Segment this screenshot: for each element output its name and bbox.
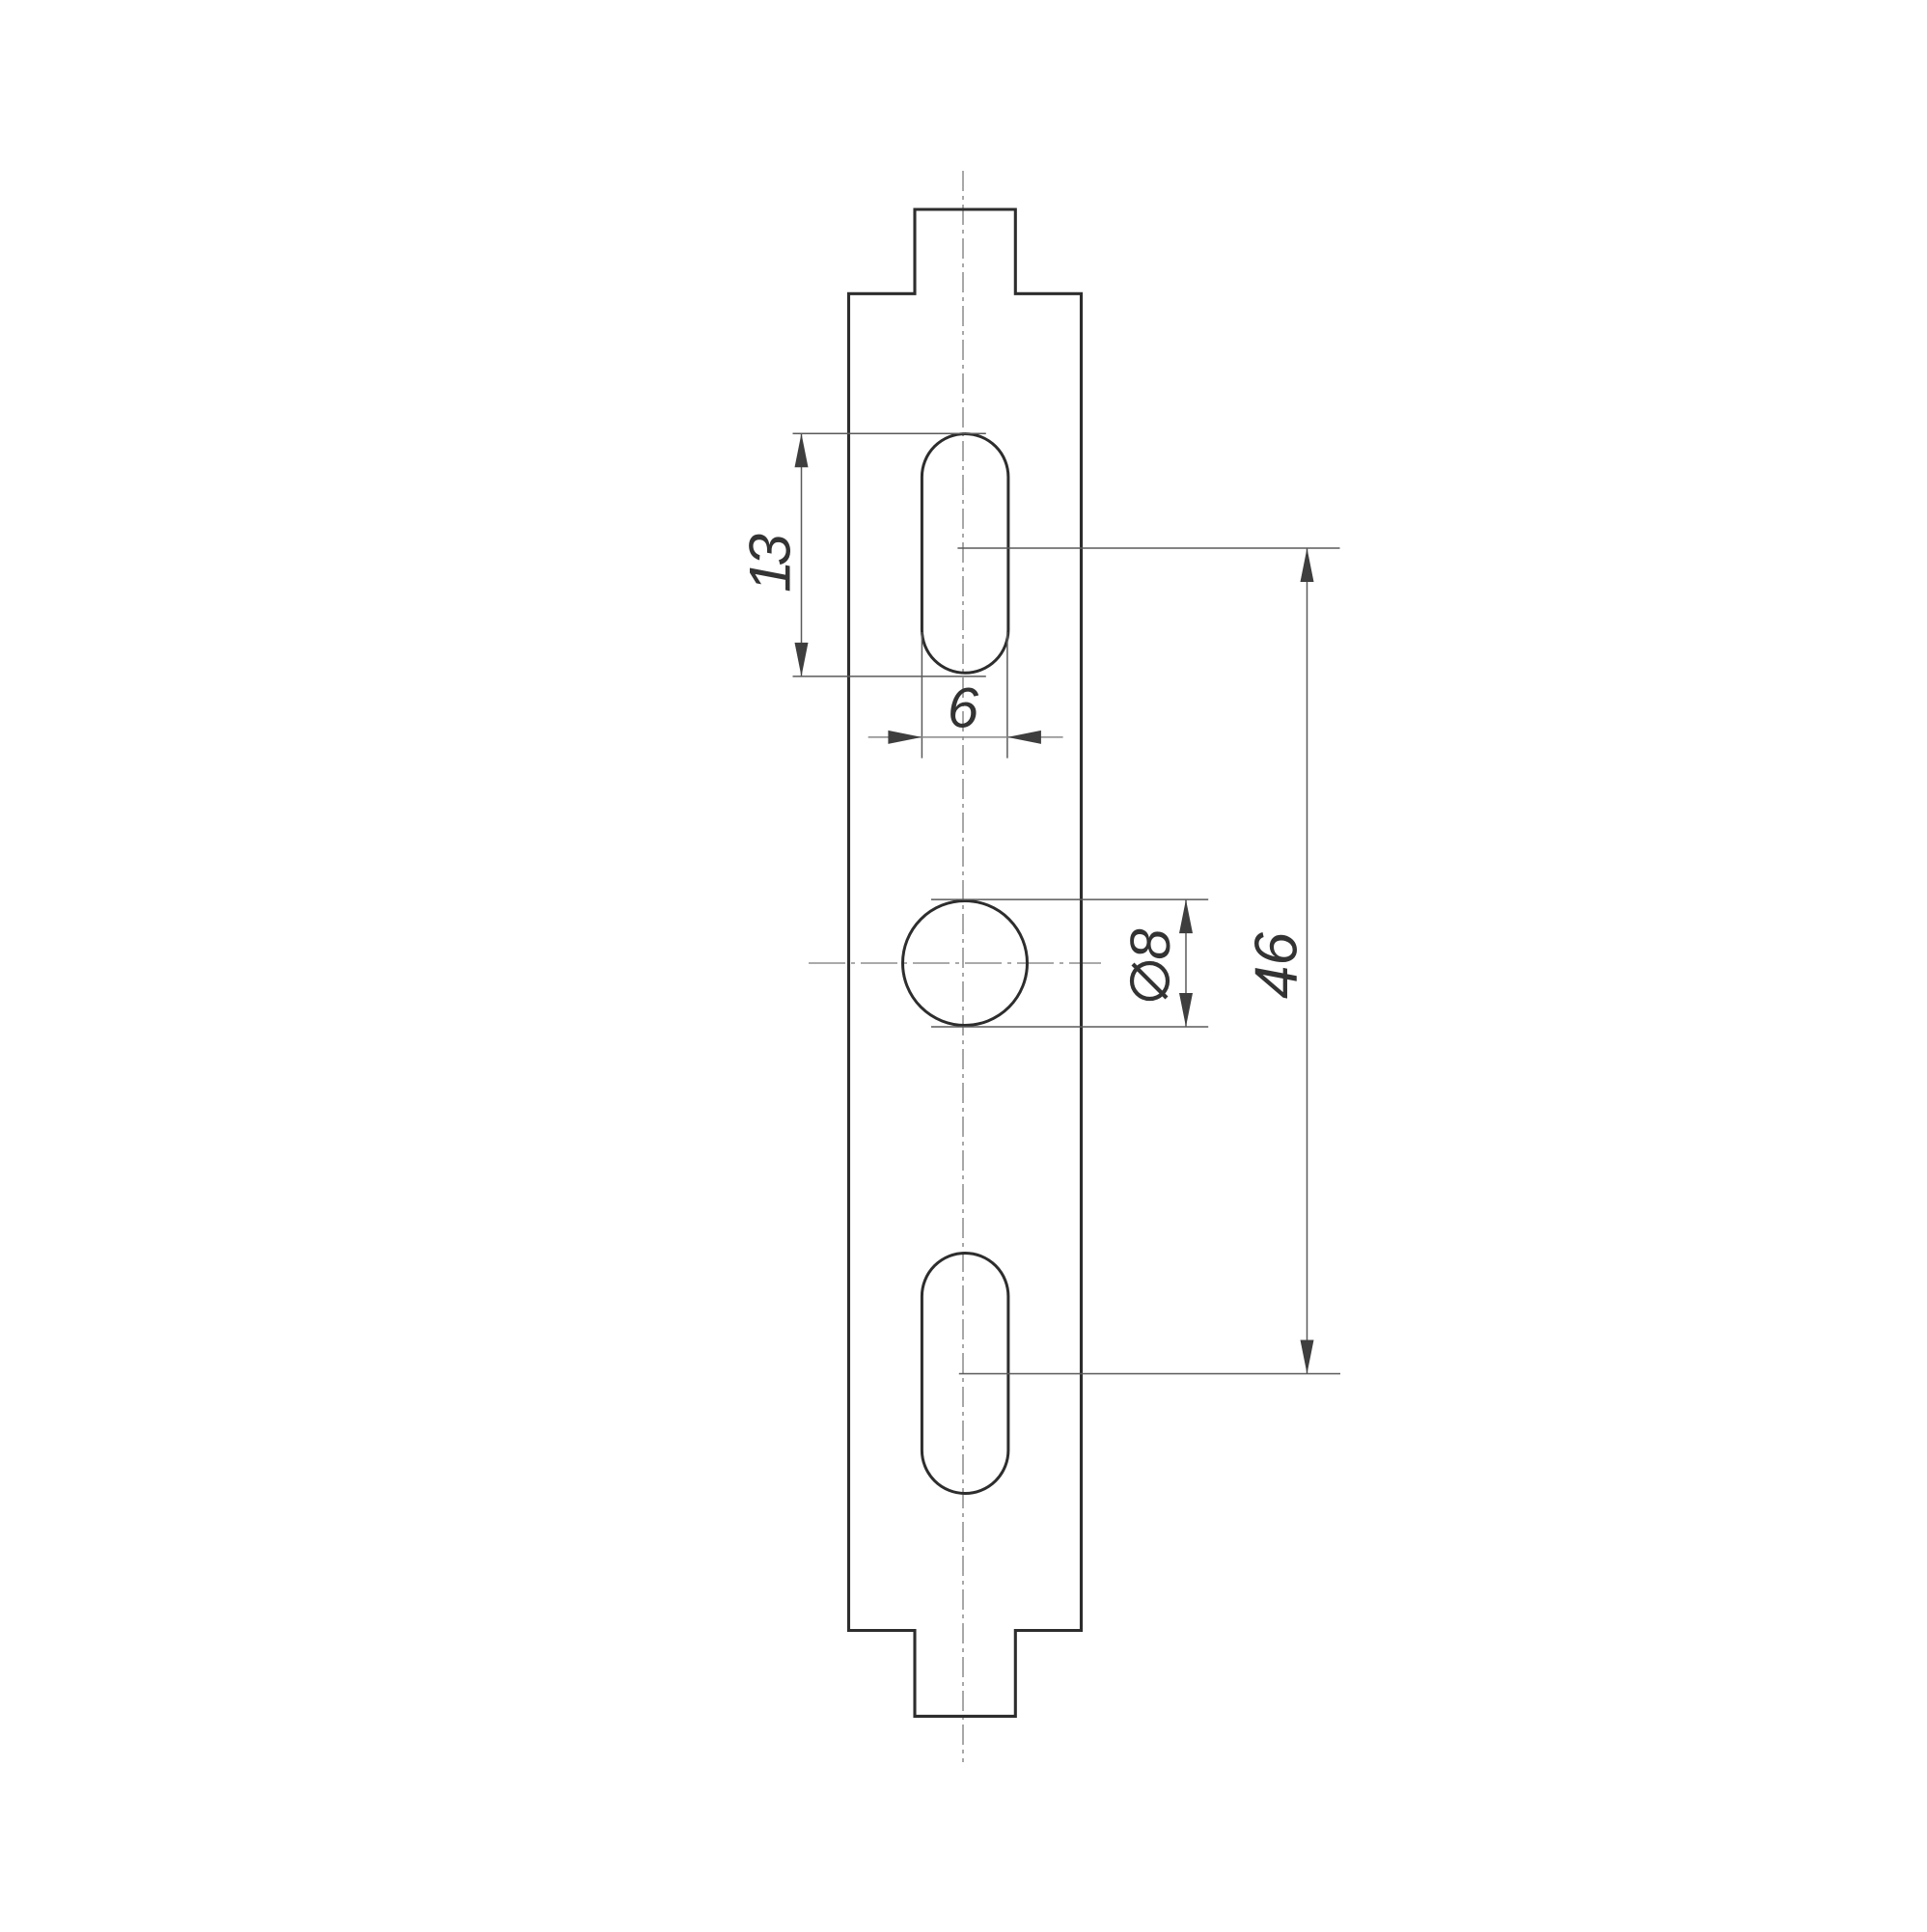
svg-text:46: 46 [1244, 932, 1310, 999]
svg-text:13: 13 [737, 535, 802, 593]
svg-text:6: 6 [948, 677, 979, 740]
svg-text:8: 8 [1119, 928, 1182, 959]
